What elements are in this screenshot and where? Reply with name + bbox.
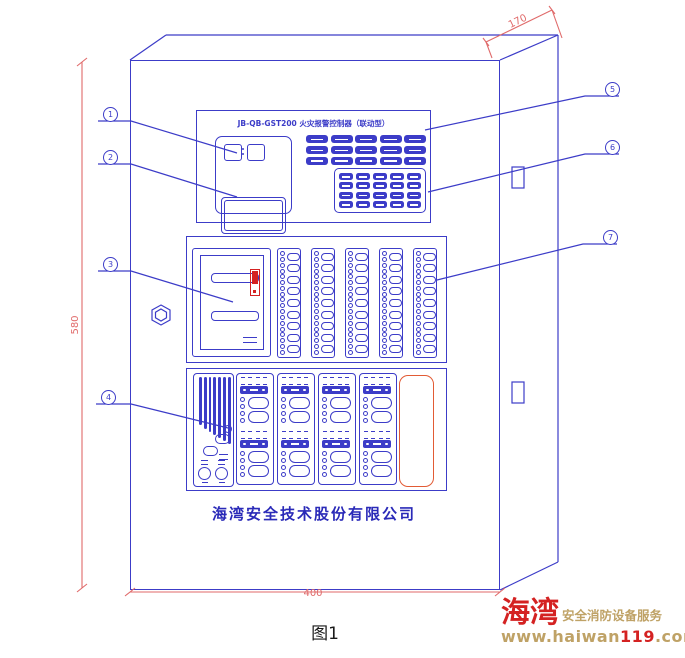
zone-light-strips xyxy=(277,248,437,358)
zone-led xyxy=(416,309,421,314)
zone-led xyxy=(416,274,421,279)
zone-led xyxy=(348,338,353,343)
lamp-text-mark xyxy=(384,160,396,162)
module-led xyxy=(322,397,327,402)
panel-model-title: JB-QB-GST200 火灾报警控制器（联动型） xyxy=(197,118,430,129)
control-button[interactable] xyxy=(248,451,269,463)
printer-alarm-indicator xyxy=(250,269,260,296)
zone-row xyxy=(346,321,368,331)
key-text-mark xyxy=(359,176,367,178)
phone-button[interactable] xyxy=(215,434,230,444)
module-leds xyxy=(240,465,245,477)
zone-leds xyxy=(348,251,353,262)
zone-row xyxy=(346,275,368,285)
callout-5: 5 xyxy=(605,82,620,97)
module-leds xyxy=(322,465,327,477)
zone-button[interactable] xyxy=(423,264,436,272)
zone-button[interactable] xyxy=(287,299,300,307)
zone-row xyxy=(312,263,334,273)
status-indicator-lamp xyxy=(380,135,402,143)
manual-control-panel xyxy=(186,368,447,491)
zone-leds xyxy=(348,263,353,274)
module-label-row xyxy=(280,377,310,385)
label-mark xyxy=(263,377,267,385)
keypad-key[interactable] xyxy=(339,201,353,208)
zone-button[interactable] xyxy=(389,287,402,295)
key-text-mark xyxy=(359,195,367,197)
zone-button[interactable] xyxy=(389,334,402,342)
lamp-text-mark xyxy=(335,160,347,162)
zone-button[interactable] xyxy=(321,264,334,272)
zone-led xyxy=(348,257,353,262)
dim-depth: 170 xyxy=(507,13,529,31)
module-label-row xyxy=(362,377,392,385)
label-mark xyxy=(241,431,245,439)
module-led xyxy=(363,451,368,456)
control-button[interactable] xyxy=(248,397,269,409)
keypad-key[interactable] xyxy=(390,192,404,199)
zone-button[interactable] xyxy=(321,287,334,295)
display-button-left[interactable] xyxy=(224,144,242,161)
zone-button[interactable] xyxy=(423,287,436,295)
key-text-mark xyxy=(359,204,367,206)
logo-tagline: 安全消防设备服务 xyxy=(562,605,662,624)
zone-button[interactable] xyxy=(389,299,402,307)
zone-led xyxy=(348,292,353,297)
zone-button[interactable] xyxy=(389,322,402,330)
zone-leds xyxy=(416,321,421,332)
module-led xyxy=(281,418,286,423)
zone-button[interactable] xyxy=(389,345,402,353)
label-mark xyxy=(282,377,286,385)
zone-led xyxy=(348,344,353,349)
label-mark xyxy=(330,431,334,439)
label-mark xyxy=(282,431,286,439)
zone-led xyxy=(382,344,387,349)
lamp-text-mark xyxy=(384,150,396,152)
zone-row xyxy=(346,298,368,308)
zone-row xyxy=(380,310,402,320)
zone-row xyxy=(380,333,402,343)
module-label-row xyxy=(239,431,269,439)
module-indicator-bar xyxy=(281,386,309,394)
url-suffix: .com xyxy=(655,627,685,646)
control-button[interactable] xyxy=(248,411,269,423)
label-mark xyxy=(330,377,334,385)
zone-row xyxy=(278,344,300,354)
zone-button[interactable] xyxy=(423,253,436,261)
module-led xyxy=(363,397,368,402)
url-highlight: 119 xyxy=(620,627,655,646)
zone-leds xyxy=(280,274,285,285)
zone-row xyxy=(380,298,402,308)
module-button-row xyxy=(362,450,392,464)
control-button[interactable] xyxy=(330,411,351,423)
module-led xyxy=(281,458,286,463)
zone-row xyxy=(380,344,402,354)
zone-button[interactable] xyxy=(321,345,334,353)
haiwan-watermark: 海湾 安全消防设备服务 www.haiwan119.com xyxy=(501,597,683,646)
keypad-key[interactable] xyxy=(407,201,421,208)
zone-button[interactable] xyxy=(287,287,300,295)
control-button[interactable] xyxy=(330,397,351,409)
lamp-text-mark xyxy=(335,150,347,152)
jack-caption-mark xyxy=(219,482,225,485)
zone-led xyxy=(314,257,319,262)
zone-led xyxy=(280,338,285,343)
status-indicator-lamp xyxy=(306,157,328,165)
zone-led xyxy=(314,338,319,343)
control-button[interactable] xyxy=(330,465,351,477)
zone-led xyxy=(280,327,285,332)
module-led xyxy=(322,418,327,423)
phone-speaker-module xyxy=(193,373,234,487)
label-mark xyxy=(338,377,342,385)
display-button-right[interactable] xyxy=(247,144,265,161)
zone-leds xyxy=(314,274,319,285)
zone-button[interactable] xyxy=(355,287,368,295)
zone-button[interactable] xyxy=(355,334,368,342)
lamp-text-mark xyxy=(311,160,323,162)
module-button-row xyxy=(239,410,269,424)
module-led xyxy=(281,472,286,477)
keypad-key[interactable] xyxy=(356,173,370,180)
label-mark xyxy=(371,377,375,385)
zone-leds xyxy=(314,332,319,343)
zone-row xyxy=(414,263,436,273)
status-indicator-lamp xyxy=(380,146,402,154)
bar-text-mark xyxy=(373,443,381,445)
jack-socket[interactable] xyxy=(215,467,228,480)
zone-button[interactable] xyxy=(423,345,436,353)
zone-button[interactable] xyxy=(355,264,368,272)
zone-led xyxy=(348,280,353,285)
zone-button[interactable] xyxy=(321,322,334,330)
control-column xyxy=(277,373,315,485)
zone-led xyxy=(416,303,421,308)
bar-text-mark xyxy=(250,443,258,445)
zone-leds xyxy=(314,251,319,262)
logo-url: www.haiwan119.com xyxy=(501,627,683,646)
control-button[interactable] xyxy=(289,397,310,409)
zone-led xyxy=(382,332,387,337)
jack-label-mark xyxy=(201,460,208,465)
key-text-mark xyxy=(410,195,418,197)
bar-text-mark xyxy=(332,389,340,391)
zone-led xyxy=(416,350,421,355)
zone-button[interactable] xyxy=(423,311,436,319)
zone-led xyxy=(416,269,421,274)
zone-button[interactable] xyxy=(321,311,334,319)
control-button[interactable] xyxy=(371,465,392,477)
lamp-text-mark xyxy=(311,139,323,141)
module-indicator-bar xyxy=(322,440,350,448)
module-led xyxy=(281,451,286,456)
zone-light-strip xyxy=(379,248,403,358)
zone-led xyxy=(314,344,319,349)
jack-socket[interactable] xyxy=(198,467,211,480)
zone-leds xyxy=(280,263,285,274)
module-leds xyxy=(281,465,286,477)
zone-row xyxy=(414,344,436,354)
zone-leds xyxy=(314,321,319,332)
callout-4: 4 xyxy=(101,390,116,405)
module-led xyxy=(322,404,327,409)
zone-led xyxy=(348,274,353,279)
module-indicator-bar xyxy=(363,386,391,394)
zone-led xyxy=(382,309,387,314)
zone-row xyxy=(312,275,334,285)
module-leds xyxy=(363,465,368,477)
status-indicator-grid xyxy=(306,135,426,165)
zone-row xyxy=(346,344,368,354)
zone-button[interactable] xyxy=(287,322,300,330)
zone-row xyxy=(414,298,436,308)
module-leds xyxy=(281,411,286,423)
module-button-row xyxy=(239,450,269,464)
multiline-control-module xyxy=(362,431,392,482)
key-text-mark xyxy=(410,185,418,187)
zone-button[interactable] xyxy=(423,334,436,342)
zone-button[interactable] xyxy=(287,264,300,272)
microphone-jack[interactable] xyxy=(215,460,228,485)
keypad-key[interactable] xyxy=(407,182,421,189)
status-indicator-lamp xyxy=(355,146,377,154)
zone-button[interactable] xyxy=(423,322,436,330)
key-text-mark xyxy=(393,176,401,178)
zone-led xyxy=(280,332,285,337)
keypad-key[interactable] xyxy=(356,201,370,208)
zone-row xyxy=(346,263,368,273)
zone-button[interactable] xyxy=(355,299,368,307)
zone-led xyxy=(382,327,387,332)
zone-led xyxy=(382,274,387,279)
label-mark xyxy=(256,431,260,439)
zone-led xyxy=(314,303,319,308)
control-button[interactable] xyxy=(248,465,269,477)
label-mark xyxy=(379,431,383,439)
zone-led xyxy=(416,280,421,285)
label-mark xyxy=(304,377,308,385)
module-indicator-bar xyxy=(240,386,268,394)
zone-button[interactable] xyxy=(321,253,334,261)
lcd-screen xyxy=(221,197,286,234)
zone-button[interactable] xyxy=(423,299,436,307)
zone-led xyxy=(280,350,285,355)
zone-button[interactable] xyxy=(389,264,402,272)
zone-led xyxy=(416,315,421,320)
module-label-row xyxy=(239,377,269,385)
jack-label-mark xyxy=(218,460,225,465)
status-indicator-lamp xyxy=(331,157,353,165)
multiline-control-module xyxy=(321,377,351,428)
zone-row xyxy=(312,310,334,320)
keypad-key[interactable] xyxy=(356,182,370,189)
zone-led xyxy=(314,251,319,256)
module-leds xyxy=(363,451,368,463)
control-button[interactable] xyxy=(371,451,392,463)
keypad-key[interactable] xyxy=(373,173,387,180)
module-led xyxy=(281,397,286,402)
zone-leds xyxy=(382,309,387,320)
zone-row xyxy=(312,321,334,331)
callout-3: 3 xyxy=(103,257,118,272)
zone-leds xyxy=(280,332,285,343)
zone-leds xyxy=(382,274,387,285)
key-text-mark xyxy=(393,195,401,197)
key-text-mark xyxy=(410,204,418,206)
key-text-mark xyxy=(393,204,401,206)
key-text-mark xyxy=(376,185,384,187)
status-indicator-lamp xyxy=(306,146,328,154)
zone-leds xyxy=(382,332,387,343)
multiline-control-module xyxy=(362,377,392,428)
zone-leds xyxy=(348,309,353,320)
speaker-slot-bar xyxy=(228,377,231,444)
status-indicator-lamp xyxy=(404,146,426,154)
key-text-mark xyxy=(376,204,384,206)
multiline-control-module xyxy=(239,431,269,482)
side-hinge xyxy=(512,167,524,188)
zone-button[interactable] xyxy=(355,322,368,330)
zone-led xyxy=(382,321,387,326)
control-button[interactable] xyxy=(330,451,351,463)
control-button[interactable] xyxy=(289,411,310,423)
zone-leds xyxy=(280,251,285,262)
module-led xyxy=(322,451,327,456)
zone-led xyxy=(280,286,285,291)
keypad-key[interactable] xyxy=(390,182,404,189)
multiline-control-module xyxy=(280,377,310,428)
zone-button[interactable] xyxy=(287,345,300,353)
zone-led xyxy=(382,303,387,308)
zone-leds xyxy=(416,251,421,262)
keypad-key[interactable] xyxy=(339,173,353,180)
label-mark xyxy=(386,377,390,385)
zone-leds xyxy=(416,309,421,320)
key-text-mark xyxy=(376,195,384,197)
zone-indicator-panel xyxy=(186,236,447,363)
label-mark xyxy=(263,431,267,439)
module-leds xyxy=(240,451,245,463)
keypad-key[interactable] xyxy=(339,192,353,199)
zone-row xyxy=(414,333,436,343)
keypad-key[interactable] xyxy=(390,201,404,208)
zone-button[interactable] xyxy=(321,299,334,307)
module-button-row xyxy=(280,464,310,478)
zone-leds xyxy=(280,309,285,320)
key-text-mark xyxy=(376,176,384,178)
lamp-text-mark xyxy=(409,150,421,152)
zone-leds xyxy=(314,286,319,297)
zone-led xyxy=(382,297,387,302)
label-mark xyxy=(364,431,368,439)
control-button[interactable] xyxy=(289,465,310,477)
module-indicator-bar xyxy=(322,386,350,394)
key-text-mark xyxy=(342,204,350,206)
keypad-key[interactable] xyxy=(339,182,353,189)
zone-button[interactable] xyxy=(389,253,402,261)
multiline-control-module xyxy=(321,431,351,482)
multiline-control-module xyxy=(239,377,269,428)
control-button[interactable] xyxy=(371,397,392,409)
zone-button[interactable] xyxy=(287,311,300,319)
keypad-key[interactable] xyxy=(373,201,387,208)
control-button[interactable] xyxy=(289,451,310,463)
module-button-row xyxy=(362,464,392,478)
phone-button[interactable] xyxy=(203,446,218,456)
zone-led xyxy=(348,327,353,332)
zone-led xyxy=(314,274,319,279)
zone-light-strip xyxy=(413,248,437,358)
zone-leds xyxy=(280,286,285,297)
keypad-key[interactable] xyxy=(373,182,387,189)
zone-leds xyxy=(348,321,353,332)
zone-leds xyxy=(280,297,285,308)
bar-text-mark xyxy=(250,389,258,391)
zone-leds xyxy=(348,274,353,285)
label-mark xyxy=(248,377,252,385)
status-indicator-lamp xyxy=(331,135,353,143)
key-text-mark xyxy=(342,195,350,197)
zone-button[interactable] xyxy=(389,276,402,284)
zone-button[interactable] xyxy=(389,311,402,319)
zone-led xyxy=(348,303,353,308)
module-leds xyxy=(281,397,286,409)
keypad-key[interactable] xyxy=(407,192,421,199)
zone-button[interactable] xyxy=(355,276,368,284)
module-led xyxy=(240,472,245,477)
zone-row xyxy=(380,321,402,331)
zone-leds xyxy=(416,263,421,274)
callout-2: 2 xyxy=(103,150,118,165)
zone-row xyxy=(312,344,334,354)
zone-button[interactable] xyxy=(287,253,300,261)
zone-button[interactable] xyxy=(423,276,436,284)
phone-jack[interactable] xyxy=(198,460,211,485)
zone-button[interactable] xyxy=(321,276,334,284)
zone-row xyxy=(414,310,436,320)
module-leds xyxy=(322,397,327,409)
zone-button[interactable] xyxy=(355,311,368,319)
keypad-key[interactable] xyxy=(407,173,421,180)
module-label-row xyxy=(321,431,351,439)
module-led xyxy=(281,411,286,416)
keypad-key[interactable] xyxy=(356,192,370,199)
zone-button[interactable] xyxy=(287,334,300,342)
zone-button[interactable] xyxy=(355,345,368,353)
zone-leds xyxy=(416,297,421,308)
zone-led xyxy=(314,350,319,355)
zone-led xyxy=(280,280,285,285)
zone-button[interactable] xyxy=(287,276,300,284)
zone-light-strip xyxy=(311,248,335,358)
bar-text-mark xyxy=(291,443,299,445)
zone-leds xyxy=(416,286,421,297)
keypad-key[interactable] xyxy=(390,173,404,180)
zone-button[interactable] xyxy=(355,253,368,261)
zone-button[interactable] xyxy=(321,334,334,342)
zone-leds xyxy=(382,297,387,308)
label-mark xyxy=(297,377,301,385)
status-indicator-lamp xyxy=(306,135,328,143)
zone-row xyxy=(380,252,402,262)
control-button[interactable] xyxy=(371,411,392,423)
keypad-key[interactable] xyxy=(373,192,387,199)
zone-led xyxy=(382,263,387,268)
url-prefix: www.haiwan xyxy=(501,627,620,646)
company-name: 海湾安全技术股份有限公司 xyxy=(130,503,498,524)
